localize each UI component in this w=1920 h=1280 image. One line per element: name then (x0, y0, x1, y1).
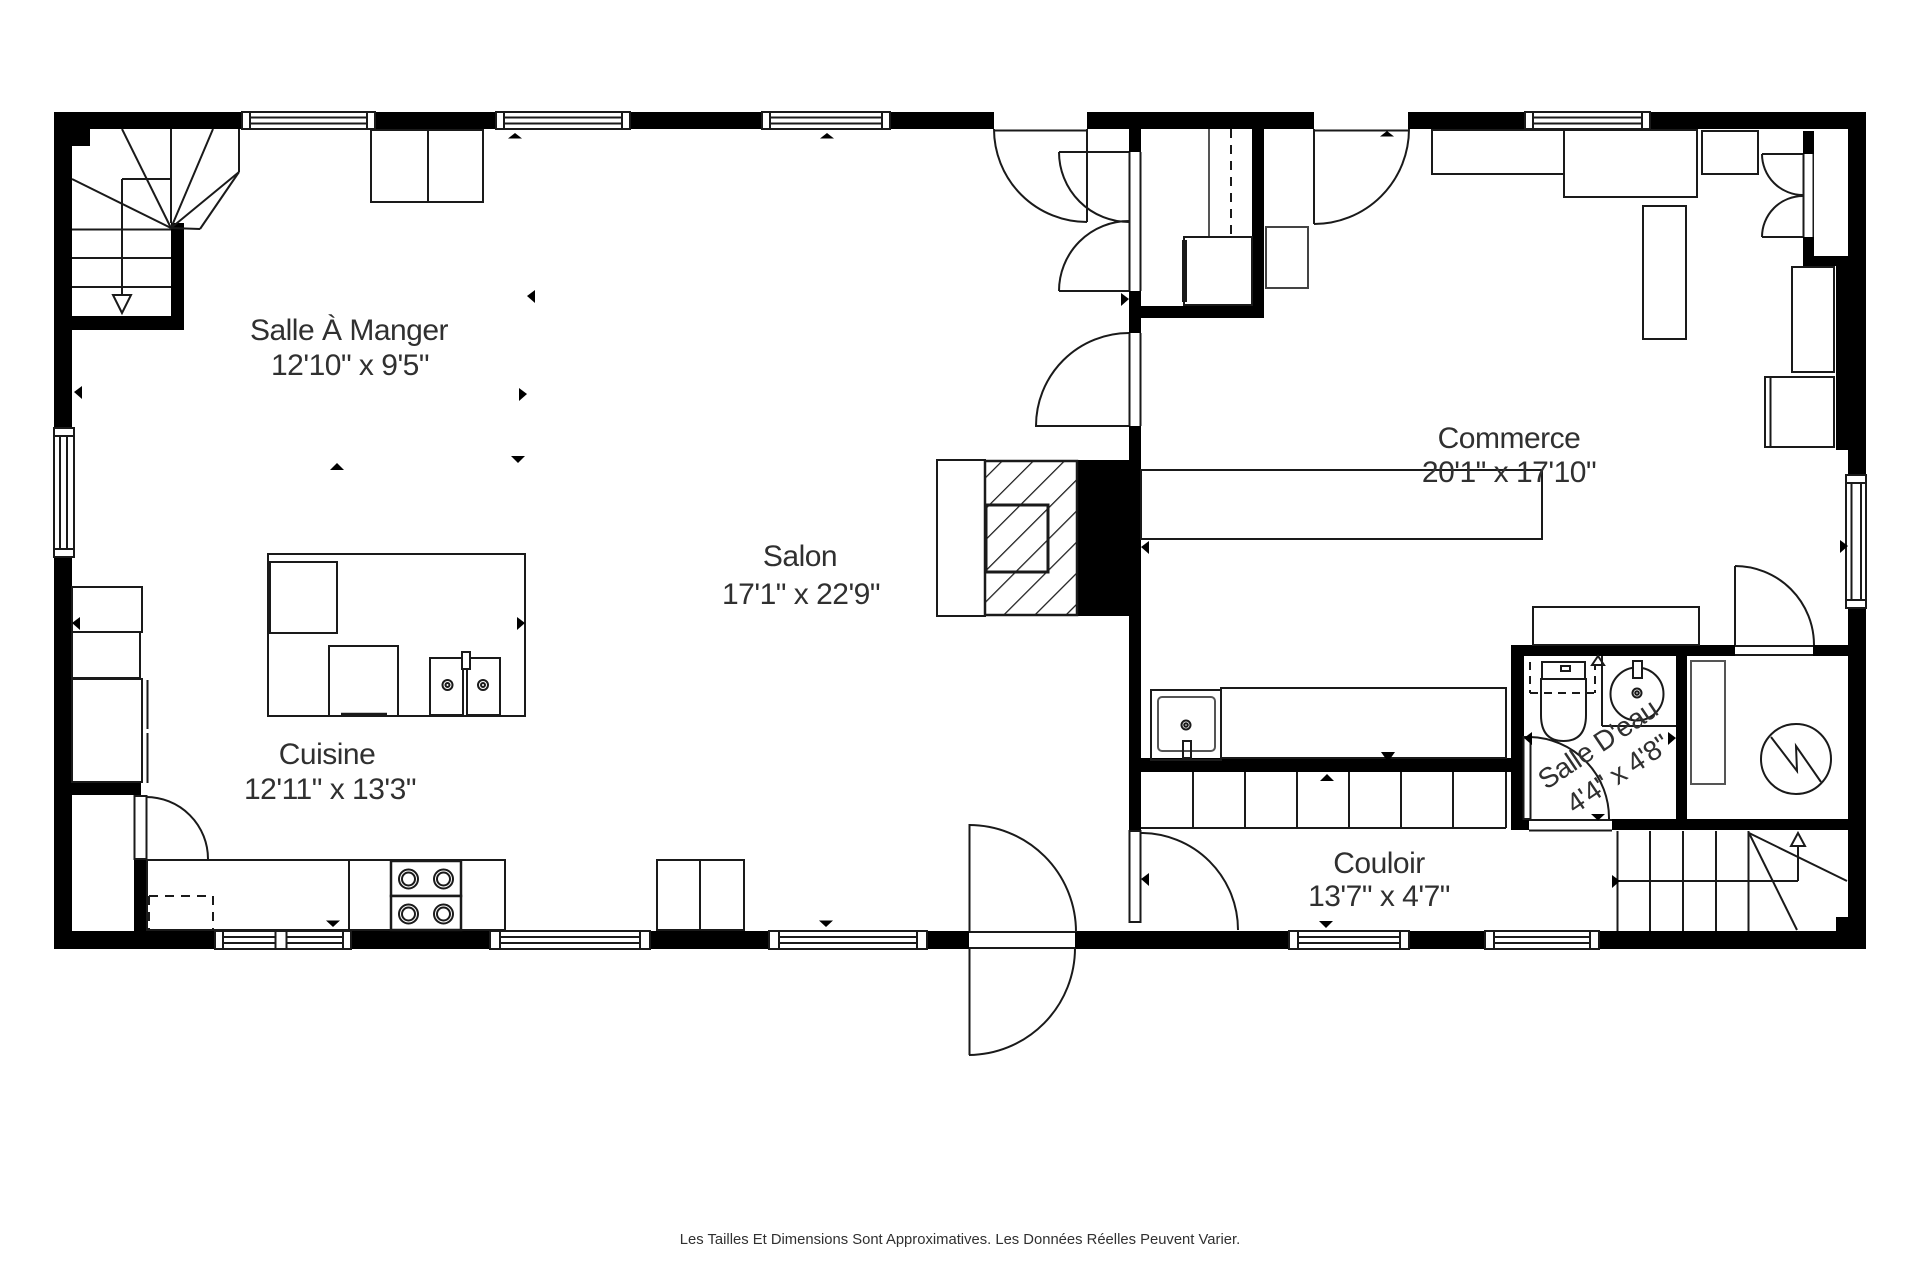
svg-text:12'10" x 9'5": 12'10" x 9'5" (271, 349, 429, 382)
svg-text:Salon: Salon (763, 540, 837, 573)
svg-text:Salle À Manger: Salle À Manger (250, 314, 449, 347)
svg-text:Commerce: Commerce (1438, 422, 1581, 455)
svg-text:13'7" x 4'7": 13'7" x 4'7" (1308, 880, 1450, 913)
svg-text:17'1" x 22'9": 17'1" x 22'9" (722, 578, 880, 611)
svg-text:Cuisine: Cuisine (279, 738, 376, 771)
svg-text:12'11" x 13'3": 12'11" x 13'3" (244, 773, 416, 806)
svg-text:20'1" x 17'10": 20'1" x 17'10" (1422, 456, 1596, 489)
svg-text:Les Tailles Et Dimensions Sont: Les Tailles Et Dimensions Sont Approxima… (680, 1232, 1240, 1248)
svg-text:Couloir: Couloir (1333, 847, 1425, 880)
